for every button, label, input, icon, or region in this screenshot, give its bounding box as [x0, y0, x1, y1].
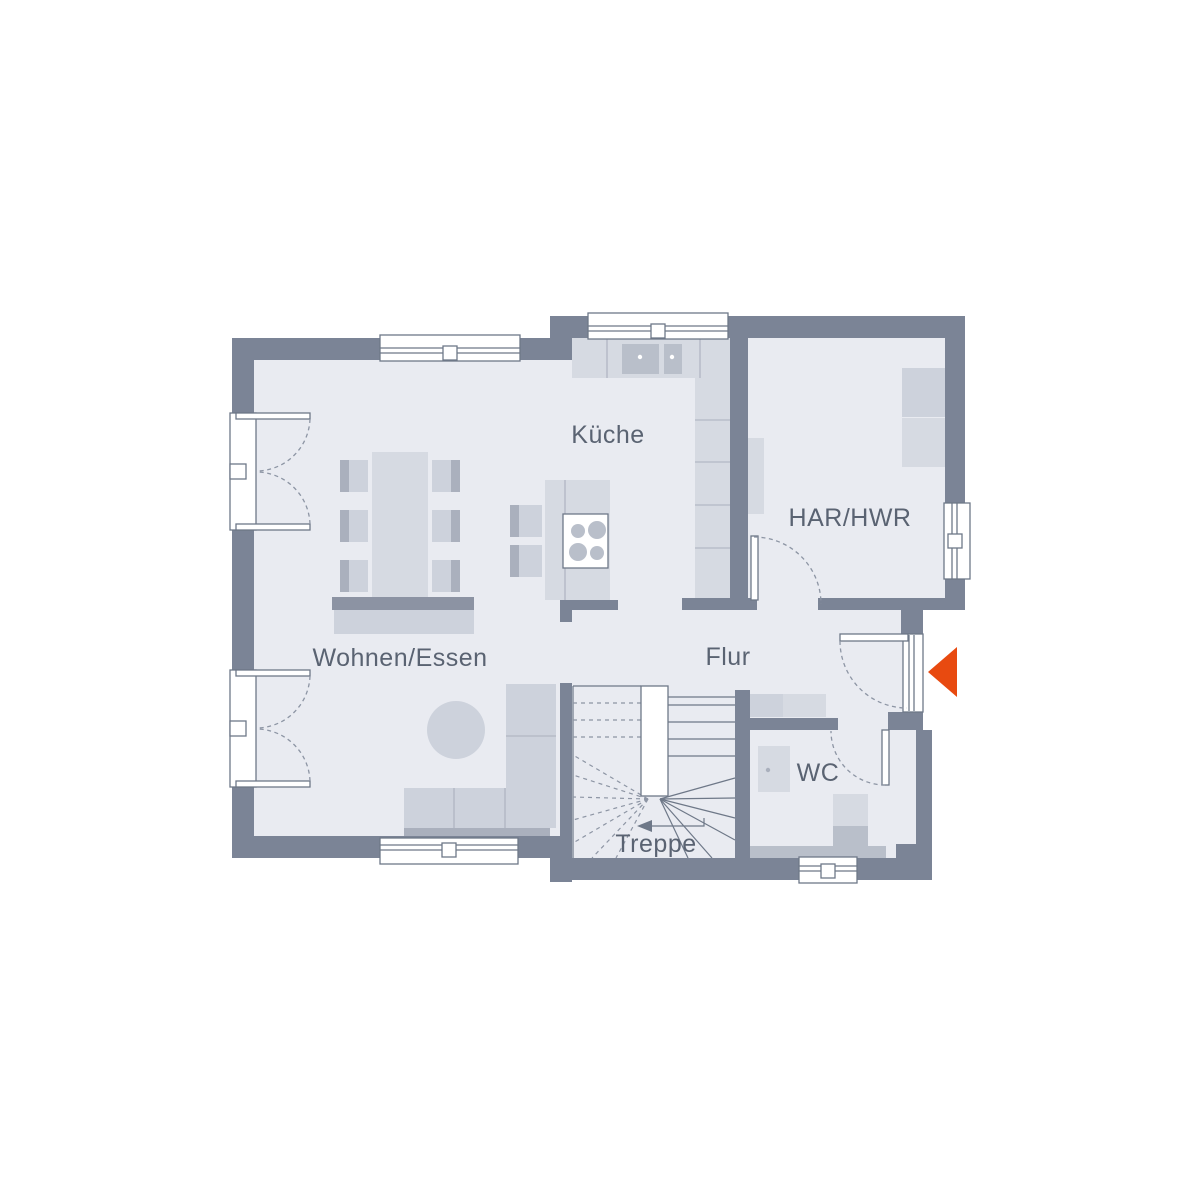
sideboard — [332, 597, 474, 634]
room-label-flur: Flur — [705, 643, 750, 671]
wall-stairs-right — [735, 690, 750, 858]
window-living-bottom — [380, 838, 518, 864]
wall-entrance-side — [916, 730, 932, 844]
room-label-wohnen-essen: Wohnen/Essen — [312, 644, 487, 672]
wall-wc-top — [750, 718, 838, 730]
room-label-treppe: Treppe — [615, 830, 696, 858]
washbasin — [758, 746, 790, 792]
wall-bottom-center — [550, 858, 932, 880]
coffee-table — [427, 701, 485, 759]
wall-kitchen-stub — [682, 598, 757, 610]
kitchen-counter-top — [572, 338, 730, 378]
room-label-wc: WC — [797, 759, 840, 787]
window-har-right — [944, 503, 970, 579]
kitchen-island — [545, 480, 610, 600]
dining-table — [372, 452, 428, 600]
room-label-kueche: Küche — [571, 421, 644, 449]
window-kitchen-top — [588, 313, 728, 339]
wall-kitchen-har — [730, 338, 748, 600]
toilet-tank — [833, 794, 868, 826]
kitchen-cabinet-column — [695, 378, 733, 600]
hallway-wardrobe — [746, 694, 826, 717]
dining-chairs-right — [432, 460, 460, 592]
entrance-arrow-icon — [928, 647, 957, 697]
stair-spine — [641, 686, 668, 796]
utility-cabinet — [748, 438, 764, 514]
dining-chairs-left — [340, 460, 368, 592]
wall-stairs-left — [560, 683, 572, 858]
toilet-bowl — [833, 826, 868, 848]
floor-plan-page: Küche HAR/HWR Wohnen/Essen Flur WC Trepp… — [0, 0, 1200, 1200]
floor-plan-drawing: Küche HAR/HWR Wohnen/Essen Flur WC Trepp… — [0, 0, 1200, 1200]
window-living-top — [380, 335, 520, 361]
room-label-har-hwr: HAR/HWR — [789, 504, 912, 532]
wall-island-stub — [560, 600, 618, 610]
window-wc-bottom — [799, 857, 857, 883]
